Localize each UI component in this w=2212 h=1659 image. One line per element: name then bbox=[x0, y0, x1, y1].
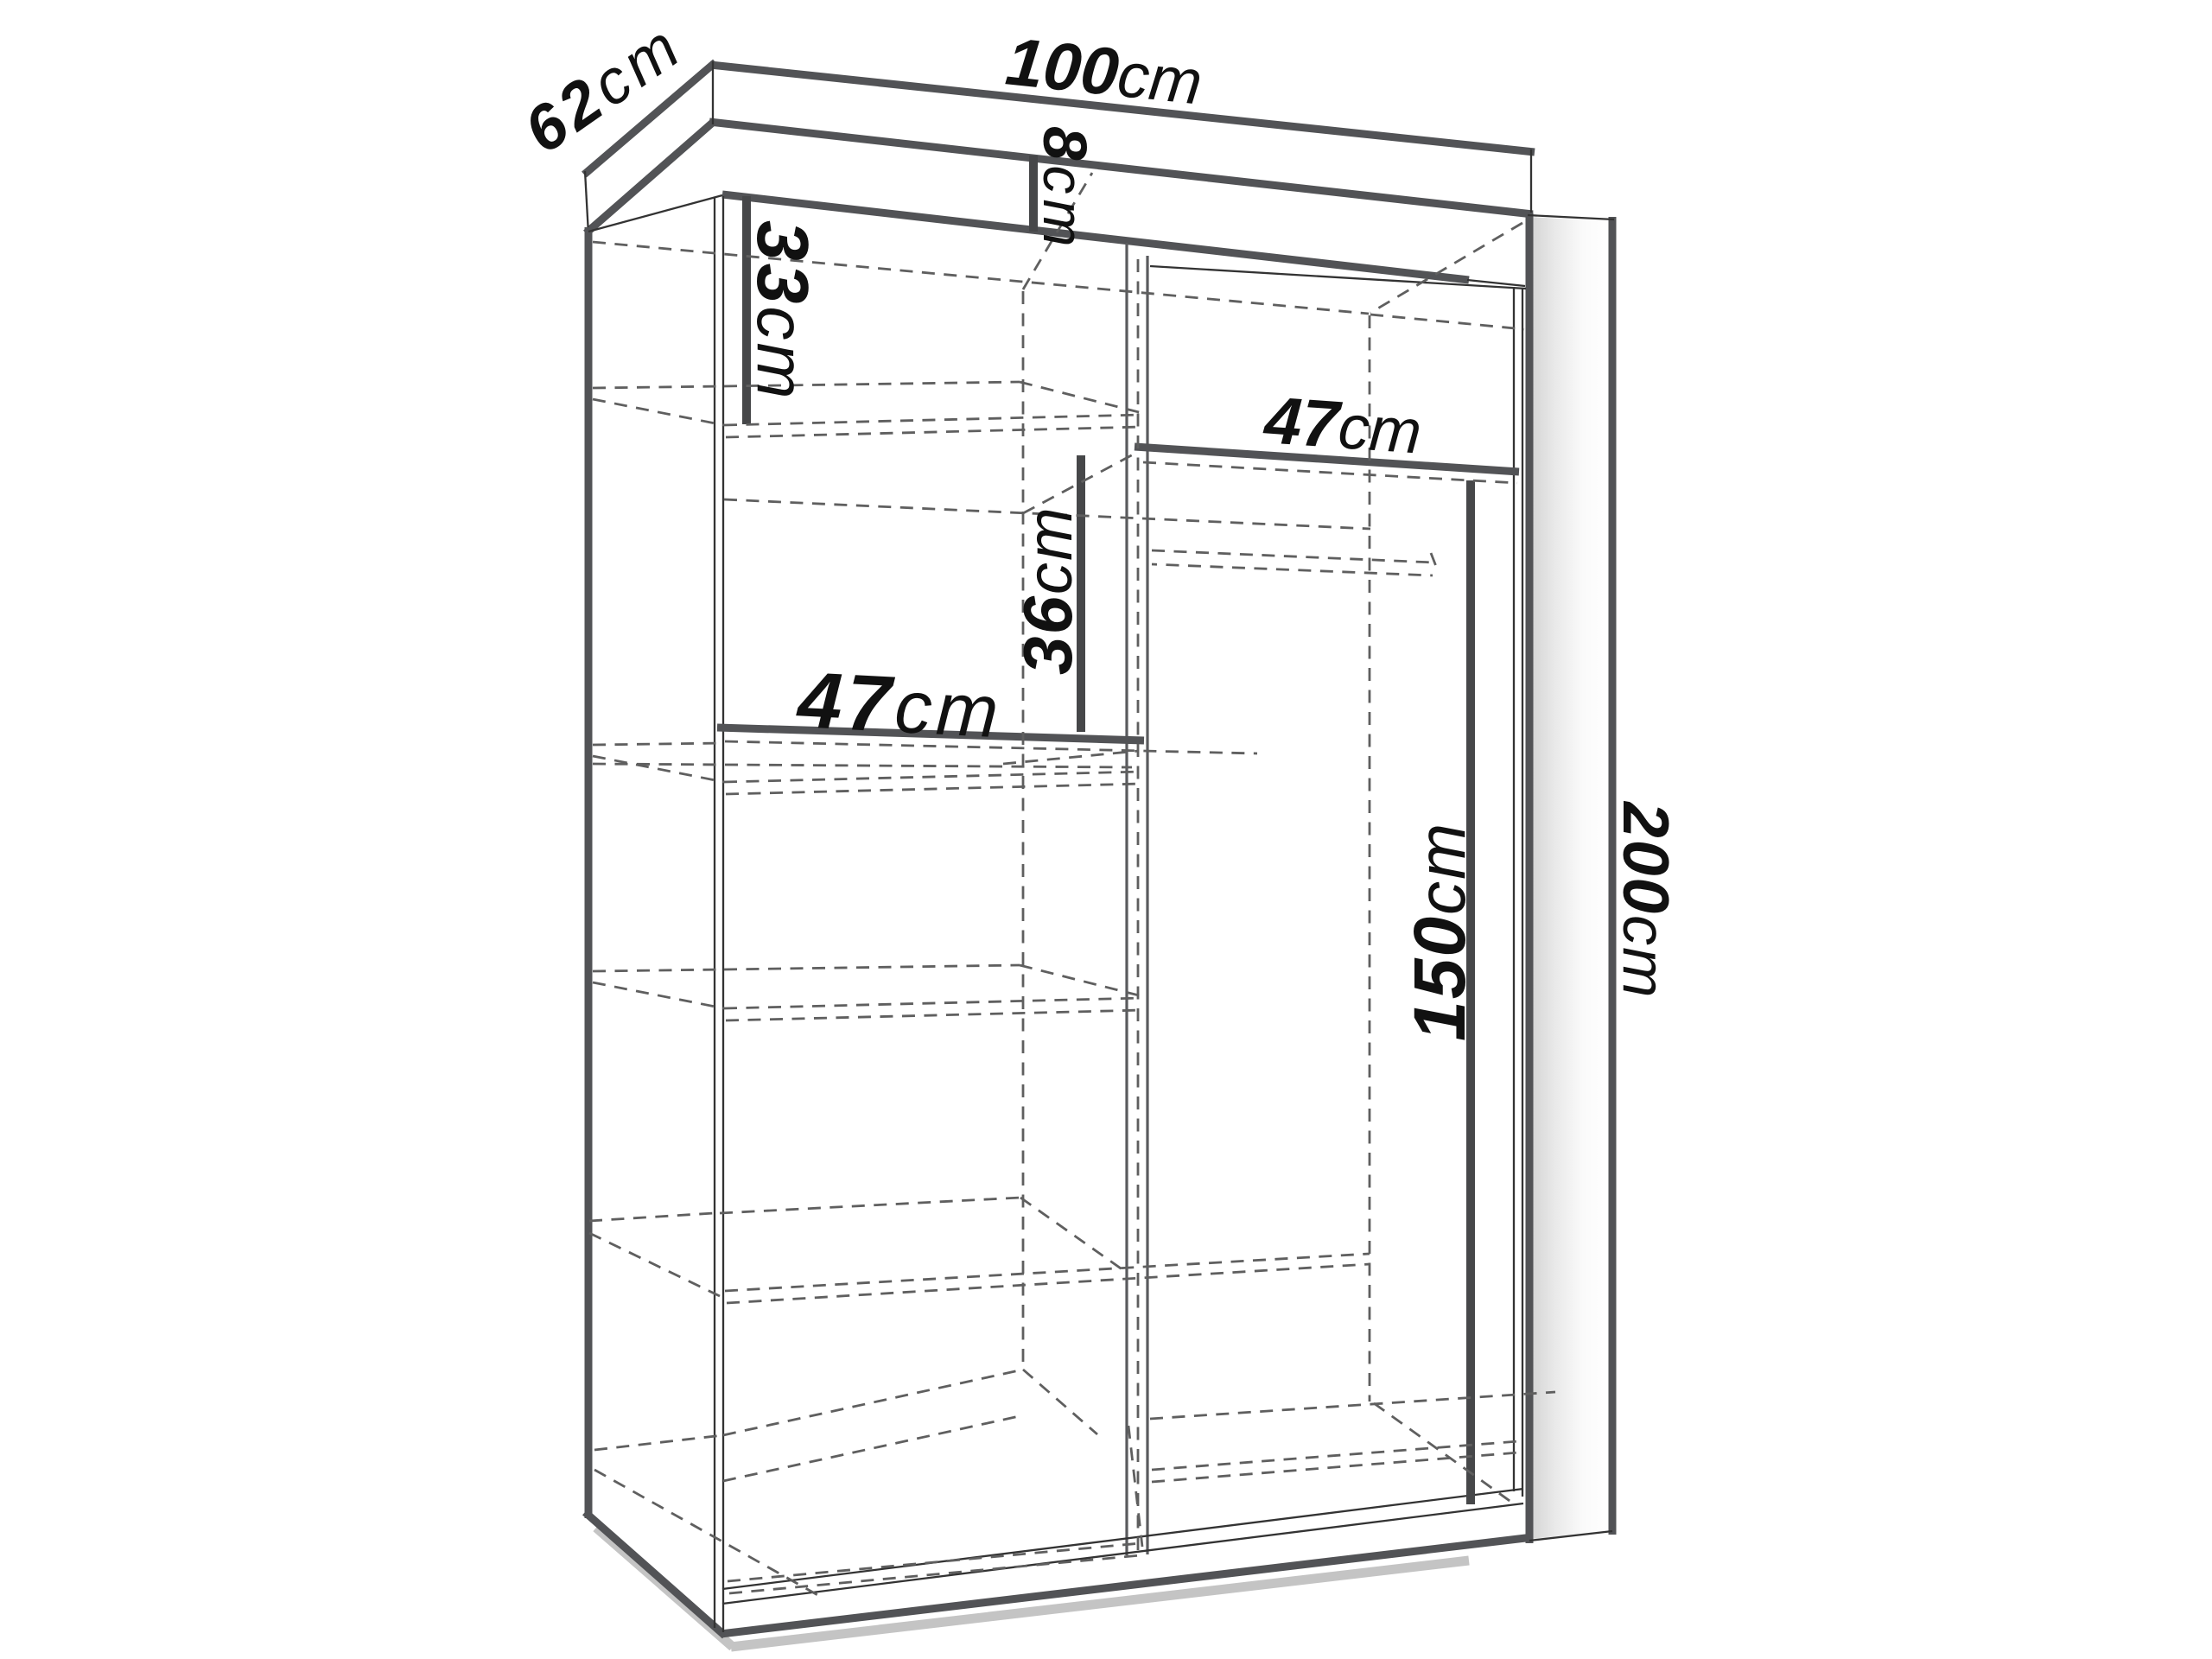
svg-text:47cm: 47cm bbox=[794, 656, 1005, 754]
svg-text:8cm: 8cm bbox=[1030, 126, 1098, 251]
svg-text:33cm: 33cm bbox=[742, 220, 823, 401]
svg-text:36cm: 36cm bbox=[1009, 505, 1086, 675]
svg-text:150cm: 150cm bbox=[1399, 822, 1480, 1041]
svg-text:200cm: 200cm bbox=[1610, 800, 1682, 999]
